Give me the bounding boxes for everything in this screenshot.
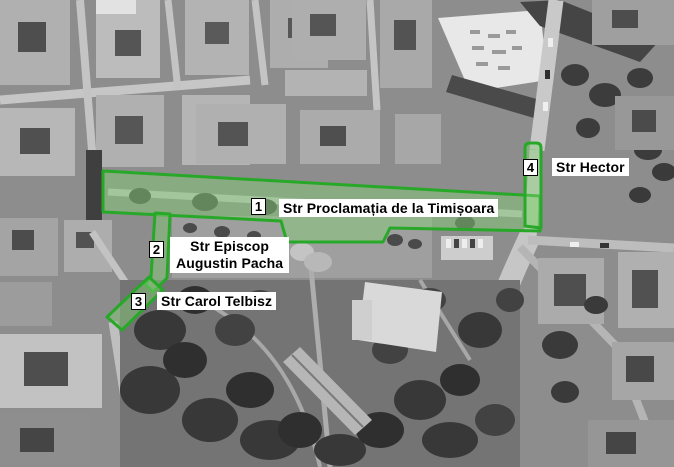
street-label-hector: Str Hector [552,158,629,176]
street-label-pacha-line1: Str Episcop [190,238,269,254]
street-label-pacha: Str Episcop Augustin Pacha [170,237,289,273]
map-screenshot: 1 Str Proclamația de la Timișoara 2 Str … [0,0,674,467]
route-marker-3: 3 [131,293,146,310]
central-park [120,252,524,467]
route-marker-2: 2 [149,241,164,258]
street-label-pacha-line2: Augustin Pacha [176,255,283,271]
route-marker-4: 4 [523,159,538,176]
aerial-photo-background [0,0,674,467]
route-marker-1: 1 [251,198,266,215]
street-label-proclamatia: Str Proclamația de la Timișoara [279,199,498,217]
street-label-telbisz: Str Carol Telbisz [157,292,276,310]
